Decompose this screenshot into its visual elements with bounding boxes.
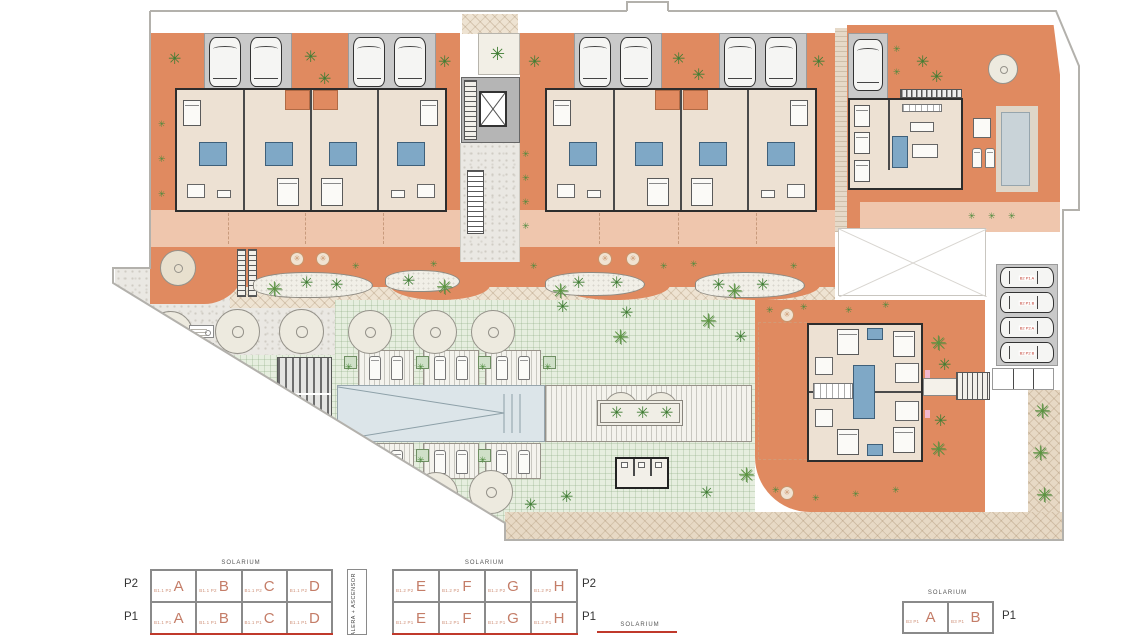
unit-code: B1.2 P1 [488,620,505,625]
floor-label-p2: P2 [582,578,596,590]
legend-cell: B1.2 P1F [439,602,485,634]
unit-letter: A [174,578,184,595]
unit-letter: A [174,610,184,627]
unit-code: B1.1 P2 [154,588,171,593]
unit-letter: B [219,610,229,627]
unit-letter: G [507,610,519,627]
unit-code: B1.1 P2 [199,588,216,593]
legend-cell: B1.2 P1G [485,602,531,634]
legend-b3: B3 P1A B3 P1B [902,601,994,634]
solarium-label: SOLARIUM [600,622,680,628]
unit-code: B1.2 P1 [442,620,459,625]
elevator-label: ESCALERA + ASCENSOR [351,573,357,635]
solarium-label: SOLARIUM [150,560,332,566]
unit-letter: A [925,609,935,626]
unit-letter: F [462,610,471,627]
unit-letter: F [462,578,471,595]
unit-code: B1.2 P2 [534,588,551,593]
legend-cell: B3 P1A [903,602,948,633]
legend-cell: B1.1 P2B [196,570,241,602]
unit-letter: E [416,610,426,627]
unit-code: B1.2 P2 [396,588,413,593]
legend-area: SOLARIUM P2 P1 B1.1 P2A B1.1 P2B B1.1 P2… [0,0,1130,635]
floor-label-p1: P1 [582,611,596,623]
elevator-legend-box: ESCALERA + ASCENSOR [347,569,367,635]
unit-code: B1.2 P1 [534,620,551,625]
unit-letter: H [554,578,565,595]
unit-letter: D [309,610,320,627]
legend-cell: B1.2 P1H [531,602,577,634]
legend-b11: B1.1 P2A B1.1 P2B B1.1 P2C B1.1 P2D B1.1… [150,569,333,635]
unit-letter: D [309,578,320,595]
unit-code: B1.1 P1 [245,620,262,625]
legend-cell: B1.1 P2C [242,570,287,602]
site-plan: ✳ [0,0,1130,635]
unit-letter: B [970,609,980,626]
legend-cell: B1.1 P2D [287,570,332,602]
legend-cell: B1.1 P2A [151,570,196,602]
unit-code: B1.1 P2 [245,588,262,593]
unit-code: B3 P1 [951,619,964,624]
unit-letter: H [554,610,565,627]
unit-code: B1.1 P1 [154,620,171,625]
unit-code: B1.1 P1 [199,620,216,625]
legend-red-line [597,631,677,633]
floor-label-p1: P1 [124,611,138,623]
legend-cell: B1.2 P2G [485,570,531,602]
legend-cell: B1.2 P2F [439,570,485,602]
legend-cell: B1.2 P2H [531,570,577,602]
legend-cell: B1.1 P1A [151,602,196,634]
legend-cell: B1.2 P2E [393,570,439,602]
unit-letter: C [264,578,275,595]
legend-cell: B1.1 P1B [196,602,241,634]
unit-code: B1.2 P2 [442,588,459,593]
unit-code: B3 P1 [906,619,919,624]
legend-cell: B1.1 P1C [242,602,287,634]
legend-b12: B1.2 P2E B1.2 P2F B1.2 P2G B1.2 P2H B1.2… [392,569,578,635]
legend-cell: B3 P1B [948,602,993,633]
floor-label-p2: P2 [124,578,138,590]
unit-code: B1.1 P2 [290,588,307,593]
solarium-label: SOLARIUM [902,590,993,596]
legend-cell: B1.1 P1D [287,602,332,634]
unit-letter: B [219,578,229,595]
floor-label-p1: P1 [1002,610,1016,622]
unit-code: B1.2 P1 [396,620,413,625]
unit-letter: E [416,578,426,595]
unit-code: B1.1 P1 [290,620,307,625]
unit-letter: G [507,578,519,595]
legend-cell: B1.2 P1E [393,602,439,634]
solarium-label: SOLARIUM [392,560,577,566]
unit-letter: C [264,610,275,627]
unit-code: B1.2 P2 [488,588,505,593]
